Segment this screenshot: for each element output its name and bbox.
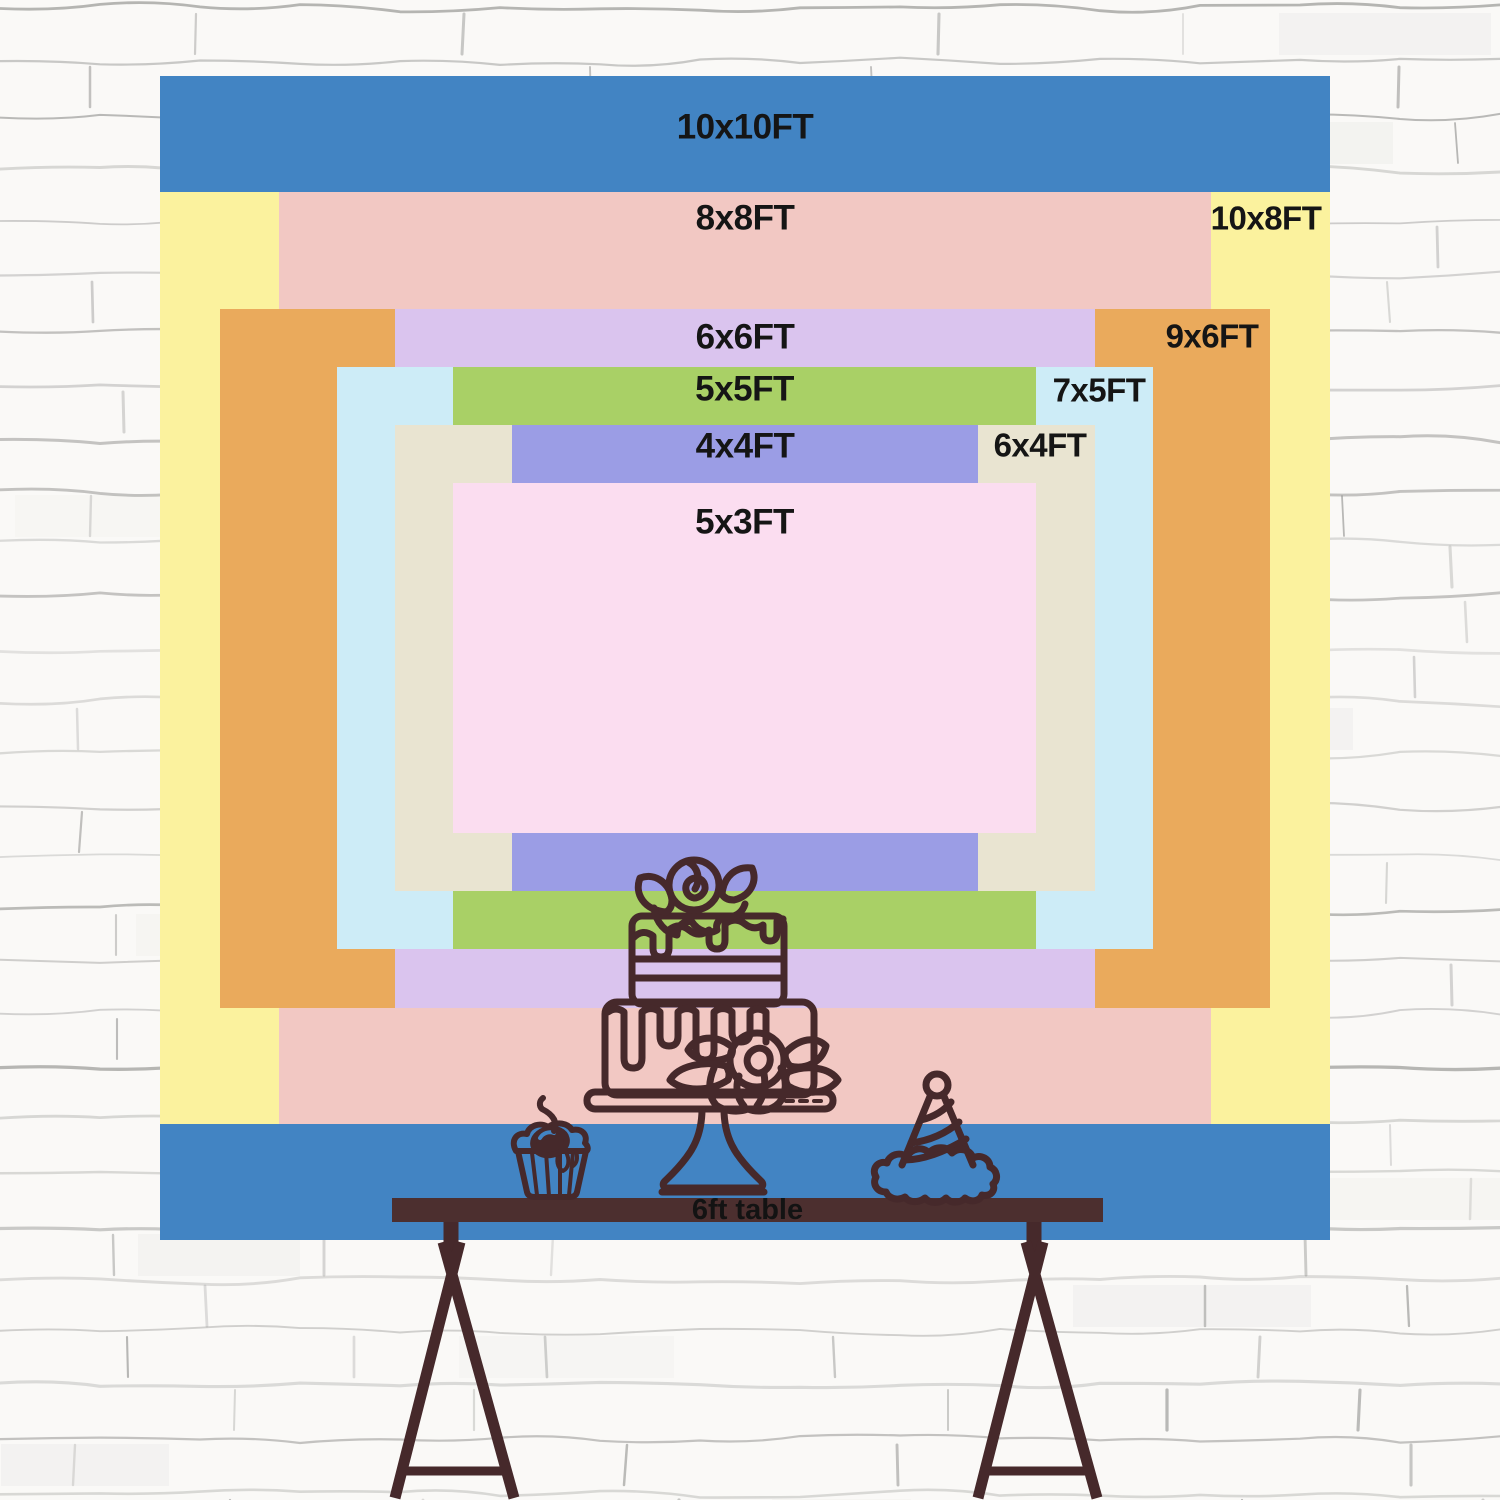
size-label-10x8ft: 10x8FT bbox=[1211, 202, 1322, 235]
size-label-6x6ft: 6x6FT bbox=[696, 320, 795, 355]
size-label-7x5ft: 7x5FT bbox=[1053, 374, 1146, 407]
size-label-8x8ft: 8x8FT bbox=[696, 201, 795, 236]
backdrop-size-chart: 10x10FT 10x8FT 8x8FT 9x6FT 6x6FT 7x5FT 5… bbox=[0, 0, 1500, 1500]
size-label-6x4ft: 6x4FT bbox=[994, 429, 1087, 462]
size-label-9x6ft: 9x6FT bbox=[1166, 320, 1259, 353]
size-label-5x5ft: 5x5FT bbox=[695, 372, 794, 407]
size-label-5x3ft: 5x3FT bbox=[695, 505, 794, 540]
table-label: 6ft table bbox=[692, 1196, 803, 1225]
size-label-10x10ft: 10x10FT bbox=[677, 110, 814, 145]
table-top: 6ft table bbox=[392, 1198, 1103, 1222]
size-label-4x4ft: 4x4FT bbox=[696, 429, 795, 464]
backdrop-layer-5x3ft: 5x3FT bbox=[453, 483, 1036, 833]
